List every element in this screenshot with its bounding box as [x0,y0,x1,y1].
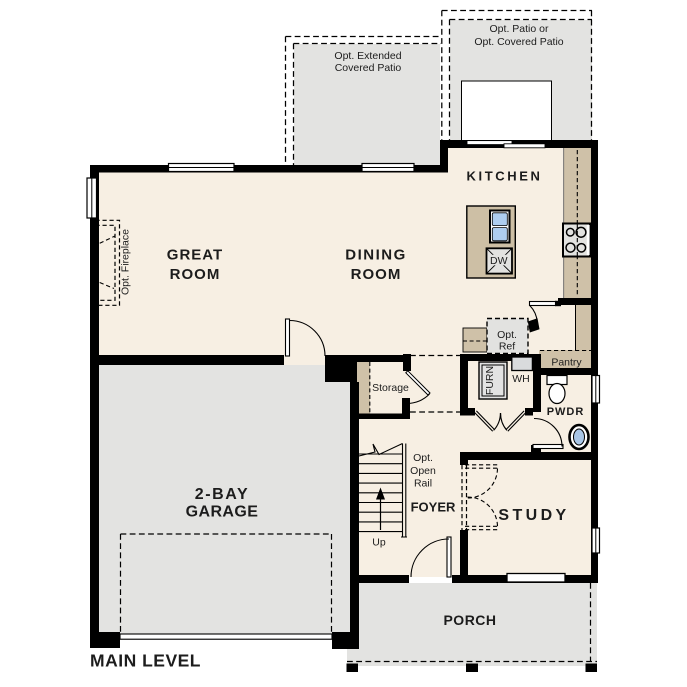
svg-text:STUDY: STUDY [498,507,569,524]
svg-text:FURN: FURN [484,366,496,395]
svg-text:GREAT: GREAT [167,246,223,263]
svg-text:Pantry: Pantry [551,357,582,369]
svg-text:PORCH: PORCH [443,612,496,628]
svg-text:Rail: Rail [414,478,432,490]
svg-text:2-BAY: 2-BAY [195,486,250,503]
svg-text:Opt. Covered Patio: Opt. Covered Patio [474,36,563,48]
svg-text:Opt. Extended: Opt. Extended [334,50,401,62]
svg-text:Opt.: Opt. [413,452,433,464]
svg-text:Covered Patio: Covered Patio [335,62,402,74]
svg-text:FOYER: FOYER [411,500,456,515]
svg-text:KITCHEN: KITCHEN [467,169,543,184]
svg-text:Opt.: Opt. [497,329,517,341]
svg-text:Opt. Fireplace: Opt. Fireplace [120,229,132,295]
svg-text:DINING: DINING [345,246,407,263]
svg-text:ROOM: ROOM [351,266,402,283]
svg-text:MAIN LEVEL: MAIN LEVEL [90,651,201,671]
svg-text:Storage: Storage [372,382,409,394]
svg-text:Ref: Ref [499,341,515,353]
svg-text:GARAGE: GARAGE [186,504,259,521]
svg-text:DW: DW [490,255,508,267]
svg-text:Opt. Patio or: Opt. Patio or [490,23,549,35]
svg-text:Open: Open [410,465,436,477]
svg-text:WH: WH [512,373,530,385]
svg-text:Up: Up [372,537,386,549]
svg-text:PWDR: PWDR [547,406,585,418]
svg-text:ROOM: ROOM [170,266,221,283]
